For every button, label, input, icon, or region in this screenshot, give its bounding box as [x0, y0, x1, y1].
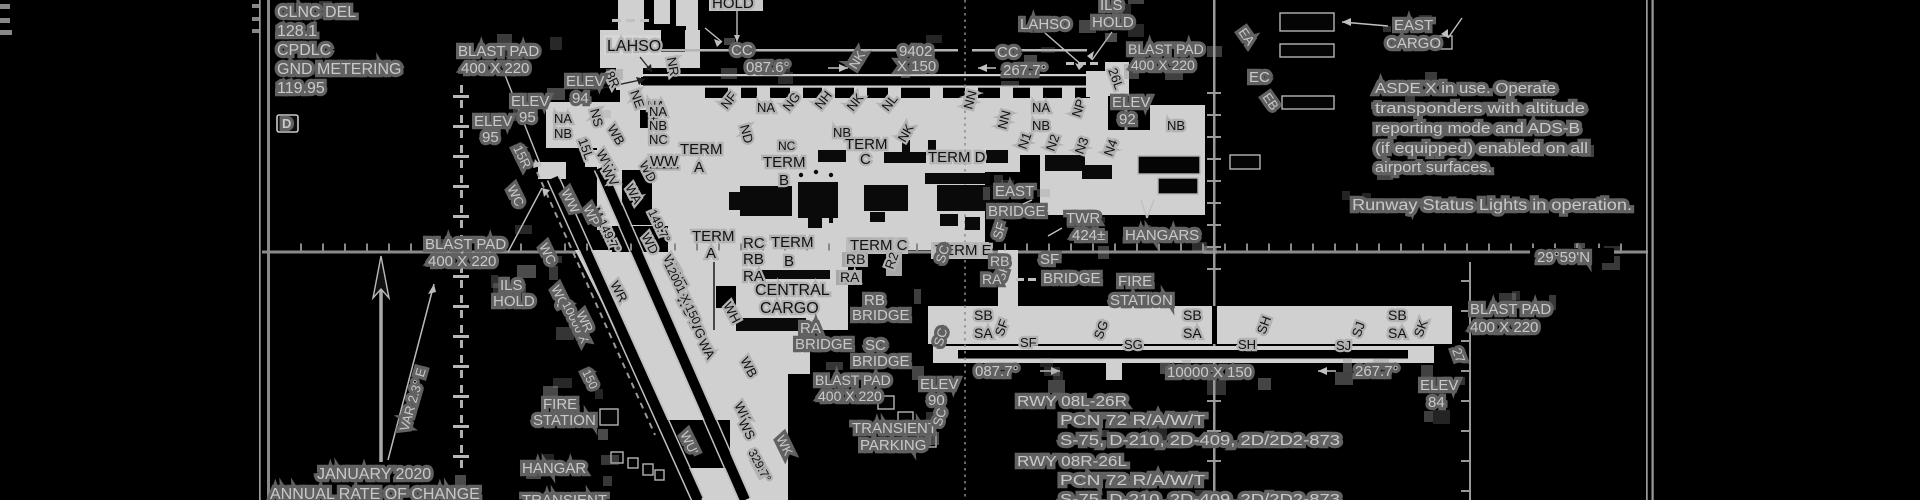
- svg-text:LAHSO: LAHSO: [1020, 16, 1071, 33]
- svg-text:airport surfaces.: airport surfaces.: [1375, 160, 1492, 176]
- svg-text:PCN 72 R/A/W/T: PCN 72 R/A/W/T: [1060, 412, 1205, 429]
- svg-text:BRIDGE: BRIDGE: [795, 336, 853, 353]
- svg-text:SH: SH: [1238, 337, 1256, 352]
- svg-text:95: 95: [519, 109, 536, 126]
- svg-text:CARGO: CARGO: [1386, 35, 1441, 52]
- svg-text:GND METERING: GND METERING: [277, 61, 401, 78]
- svg-text:Runway Status Lights in operat: Runway Status Lights in operation.: [1352, 197, 1632, 214]
- svg-text:HOLD: HOLD: [493, 293, 535, 310]
- svg-text:NC: NC: [778, 139, 796, 153]
- svg-text:BLAST PAD: BLAST PAD: [458, 43, 539, 60]
- svg-text:TWR: TWR: [1066, 210, 1100, 227]
- svg-text:NB: NB: [1032, 118, 1050, 133]
- svg-text:TRANSIENT: TRANSIENT: [522, 492, 607, 500]
- svg-text:95: 95: [482, 129, 499, 146]
- svg-text:SB: SB: [1183, 307, 1202, 323]
- svg-text:EAST: EAST: [995, 183, 1034, 200]
- svg-text:SA: SA: [1183, 325, 1202, 341]
- svg-text:BRIDGE: BRIDGE: [852, 353, 910, 370]
- svg-text:29°59'N: 29°59'N: [1537, 249, 1590, 266]
- svg-text:TRANSIENT: TRANSIENT: [852, 420, 937, 437]
- svg-text:94: 94: [572, 90, 589, 107]
- svg-text:C: C: [860, 151, 871, 168]
- svg-text:267.7°: 267.7°: [1003, 62, 1047, 79]
- svg-text:CLNC DEL: CLNC DEL: [277, 4, 356, 21]
- svg-text:RA: RA: [840, 269, 860, 285]
- svg-text:A: A: [706, 245, 716, 262]
- svg-text:400 X 220: 400 X 220: [1470, 319, 1538, 336]
- svg-text:SF: SF: [1020, 335, 1037, 350]
- svg-text:RB: RB: [990, 253, 1009, 269]
- svg-text:CARGO: CARGO: [760, 300, 819, 317]
- svg-text:10000 X 150: 10000 X 150: [1167, 364, 1252, 381]
- svg-text:ILS: ILS: [500, 277, 523, 294]
- svg-text:BLAST PAD: BLAST PAD: [1470, 301, 1551, 318]
- svg-text:SJ: SJ: [1336, 338, 1351, 353]
- svg-text:HOLD: HOLD: [1092, 14, 1134, 31]
- svg-text:ILS: ILS: [1100, 0, 1123, 14]
- svg-text:SC: SC: [865, 337, 886, 354]
- svg-text:FIRE: FIRE: [1118, 273, 1152, 290]
- svg-text:(if equipped) enabled on all: (if equipped) enabled on all: [1375, 141, 1588, 157]
- svg-text:NC: NC: [649, 132, 668, 147]
- svg-text:NA: NA: [757, 100, 775, 115]
- svg-text:WW: WW: [650, 153, 679, 170]
- svg-text:92: 92: [1119, 111, 1136, 128]
- svg-text:SG: SG: [1124, 337, 1143, 352]
- svg-text:CC: CC: [731, 42, 753, 59]
- svg-text:BRIDGE: BRIDGE: [1043, 270, 1101, 287]
- svg-text:JANUARY 2020: JANUARY 2020: [317, 466, 431, 483]
- svg-text:ANNUAL RATE OF CHANGE: ANNUAL RATE OF CHANGE: [270, 486, 480, 500]
- svg-text:400 X 220: 400 X 220: [1131, 57, 1195, 73]
- svg-text:BLAST PAD: BLAST PAD: [815, 372, 891, 388]
- svg-text:400 X 220: 400 X 220: [818, 388, 882, 404]
- svg-text:ELEV: ELEV: [1112, 94, 1150, 111]
- svg-text:B: B: [784, 253, 794, 270]
- svg-text:PCN 72 R/A/W/T: PCN 72 R/A/W/T: [1060, 472, 1205, 489]
- svg-text:NB: NB: [649, 118, 667, 133]
- svg-text:NA: NA: [649, 104, 667, 119]
- svg-text:TERM: TERM: [680, 141, 723, 158]
- svg-text:SB: SB: [1388, 307, 1407, 323]
- svg-text:RB: RB: [846, 251, 865, 267]
- svg-text:X 150: X 150: [897, 58, 936, 75]
- svg-text:BLAST PAD: BLAST PAD: [425, 236, 506, 253]
- svg-text:NA: NA: [1032, 100, 1050, 115]
- svg-text:EC: EC: [1249, 69, 1270, 86]
- svg-text:ELEV: ELEV: [1420, 377, 1458, 394]
- svg-text:NB: NB: [554, 126, 572, 141]
- svg-text:A: A: [694, 159, 704, 176]
- svg-text:FIRE: FIRE: [543, 396, 577, 413]
- svg-text:128.1: 128.1: [277, 23, 317, 40]
- svg-text:RA: RA: [800, 320, 821, 337]
- svg-text:ELEV: ELEV: [511, 93, 549, 110]
- svg-text:HOLD: HOLD: [712, 0, 754, 12]
- svg-text:RWY 08R-26L: RWY 08R-26L: [1017, 453, 1127, 470]
- svg-text:90: 90: [928, 392, 945, 409]
- svg-text:NR: NR: [664, 56, 682, 77]
- svg-text:B: B: [779, 172, 789, 189]
- svg-text:BRIDGE: BRIDGE: [852, 307, 910, 324]
- svg-text:RA: RA: [982, 271, 1002, 287]
- svg-text:STATION: STATION: [533, 412, 596, 429]
- svg-text:D: D: [282, 116, 291, 131]
- svg-text:84: 84: [1428, 394, 1445, 411]
- svg-text:SA: SA: [1388, 325, 1407, 341]
- svg-text:HANGARS: HANGARS: [1125, 227, 1199, 244]
- svg-text:ASDE X in use. Operate: ASDE X in use. Operate: [1375, 81, 1556, 97]
- svg-text:BLAST PAD: BLAST PAD: [1128, 41, 1204, 57]
- svg-text:RB: RB: [743, 251, 764, 268]
- svg-text:087.6°: 087.6°: [746, 59, 790, 76]
- svg-text:400 X 220: 400 X 220: [428, 253, 496, 270]
- svg-text:NB: NB: [1167, 118, 1185, 133]
- svg-text:267.7°: 267.7°: [1355, 363, 1399, 380]
- svg-text:LAHSO: LAHSO: [607, 38, 661, 55]
- svg-text:BRIDGE: BRIDGE: [988, 203, 1046, 220]
- svg-text:HANGAR: HANGAR: [522, 460, 586, 477]
- svg-text:S-75, D-210, 2D-409, 2D/2D2-87: S-75, D-210, 2D-409, 2D/2D2-873: [1060, 432, 1340, 449]
- svg-text:reporting mode and ADS-B: reporting mode and ADS-B: [1375, 121, 1580, 137]
- svg-text:424±: 424±: [1072, 227, 1105, 244]
- svg-text:CC: CC: [997, 44, 1019, 61]
- svg-text:SA: SA: [974, 325, 993, 341]
- svg-text:TERM: TERM: [771, 234, 814, 251]
- svg-text:RWY 08L-26R: RWY 08L-26R: [1017, 393, 1127, 410]
- svg-text:NA: NA: [554, 111, 572, 126]
- svg-text:transponders with altitude: transponders with altitude: [1375, 101, 1585, 117]
- svg-text:STATION: STATION: [1110, 292, 1173, 309]
- svg-text:TERM D: TERM D: [928, 149, 986, 166]
- svg-text:EAST: EAST: [1394, 17, 1433, 34]
- svg-text:RC: RC: [743, 235, 765, 252]
- svg-text:ELEV: ELEV: [474, 113, 512, 130]
- svg-text:ELEV: ELEV: [920, 376, 958, 393]
- svg-text:087.7°: 087.7°: [975, 363, 1019, 380]
- svg-text:400 X 220: 400 X 220: [461, 60, 529, 77]
- svg-text:PARKING: PARKING: [860, 437, 926, 454]
- svg-text:CPDLC: CPDLC: [277, 42, 331, 59]
- svg-text:S-75, D-210, 2D-409, 2D/2D2-87: S-75, D-210, 2D-409, 2D/2D2-873: [1060, 491, 1340, 500]
- svg-text:SB: SB: [974, 307, 993, 323]
- svg-text:119.95: 119.95: [277, 80, 325, 97]
- svg-text:TERM: TERM: [763, 154, 806, 171]
- svg-text:SF: SF: [1040, 251, 1059, 268]
- svg-text:CENTRAL: CENTRAL: [755, 282, 830, 299]
- svg-text:ELEV: ELEV: [566, 73, 604, 90]
- svg-text:TERM: TERM: [692, 228, 735, 245]
